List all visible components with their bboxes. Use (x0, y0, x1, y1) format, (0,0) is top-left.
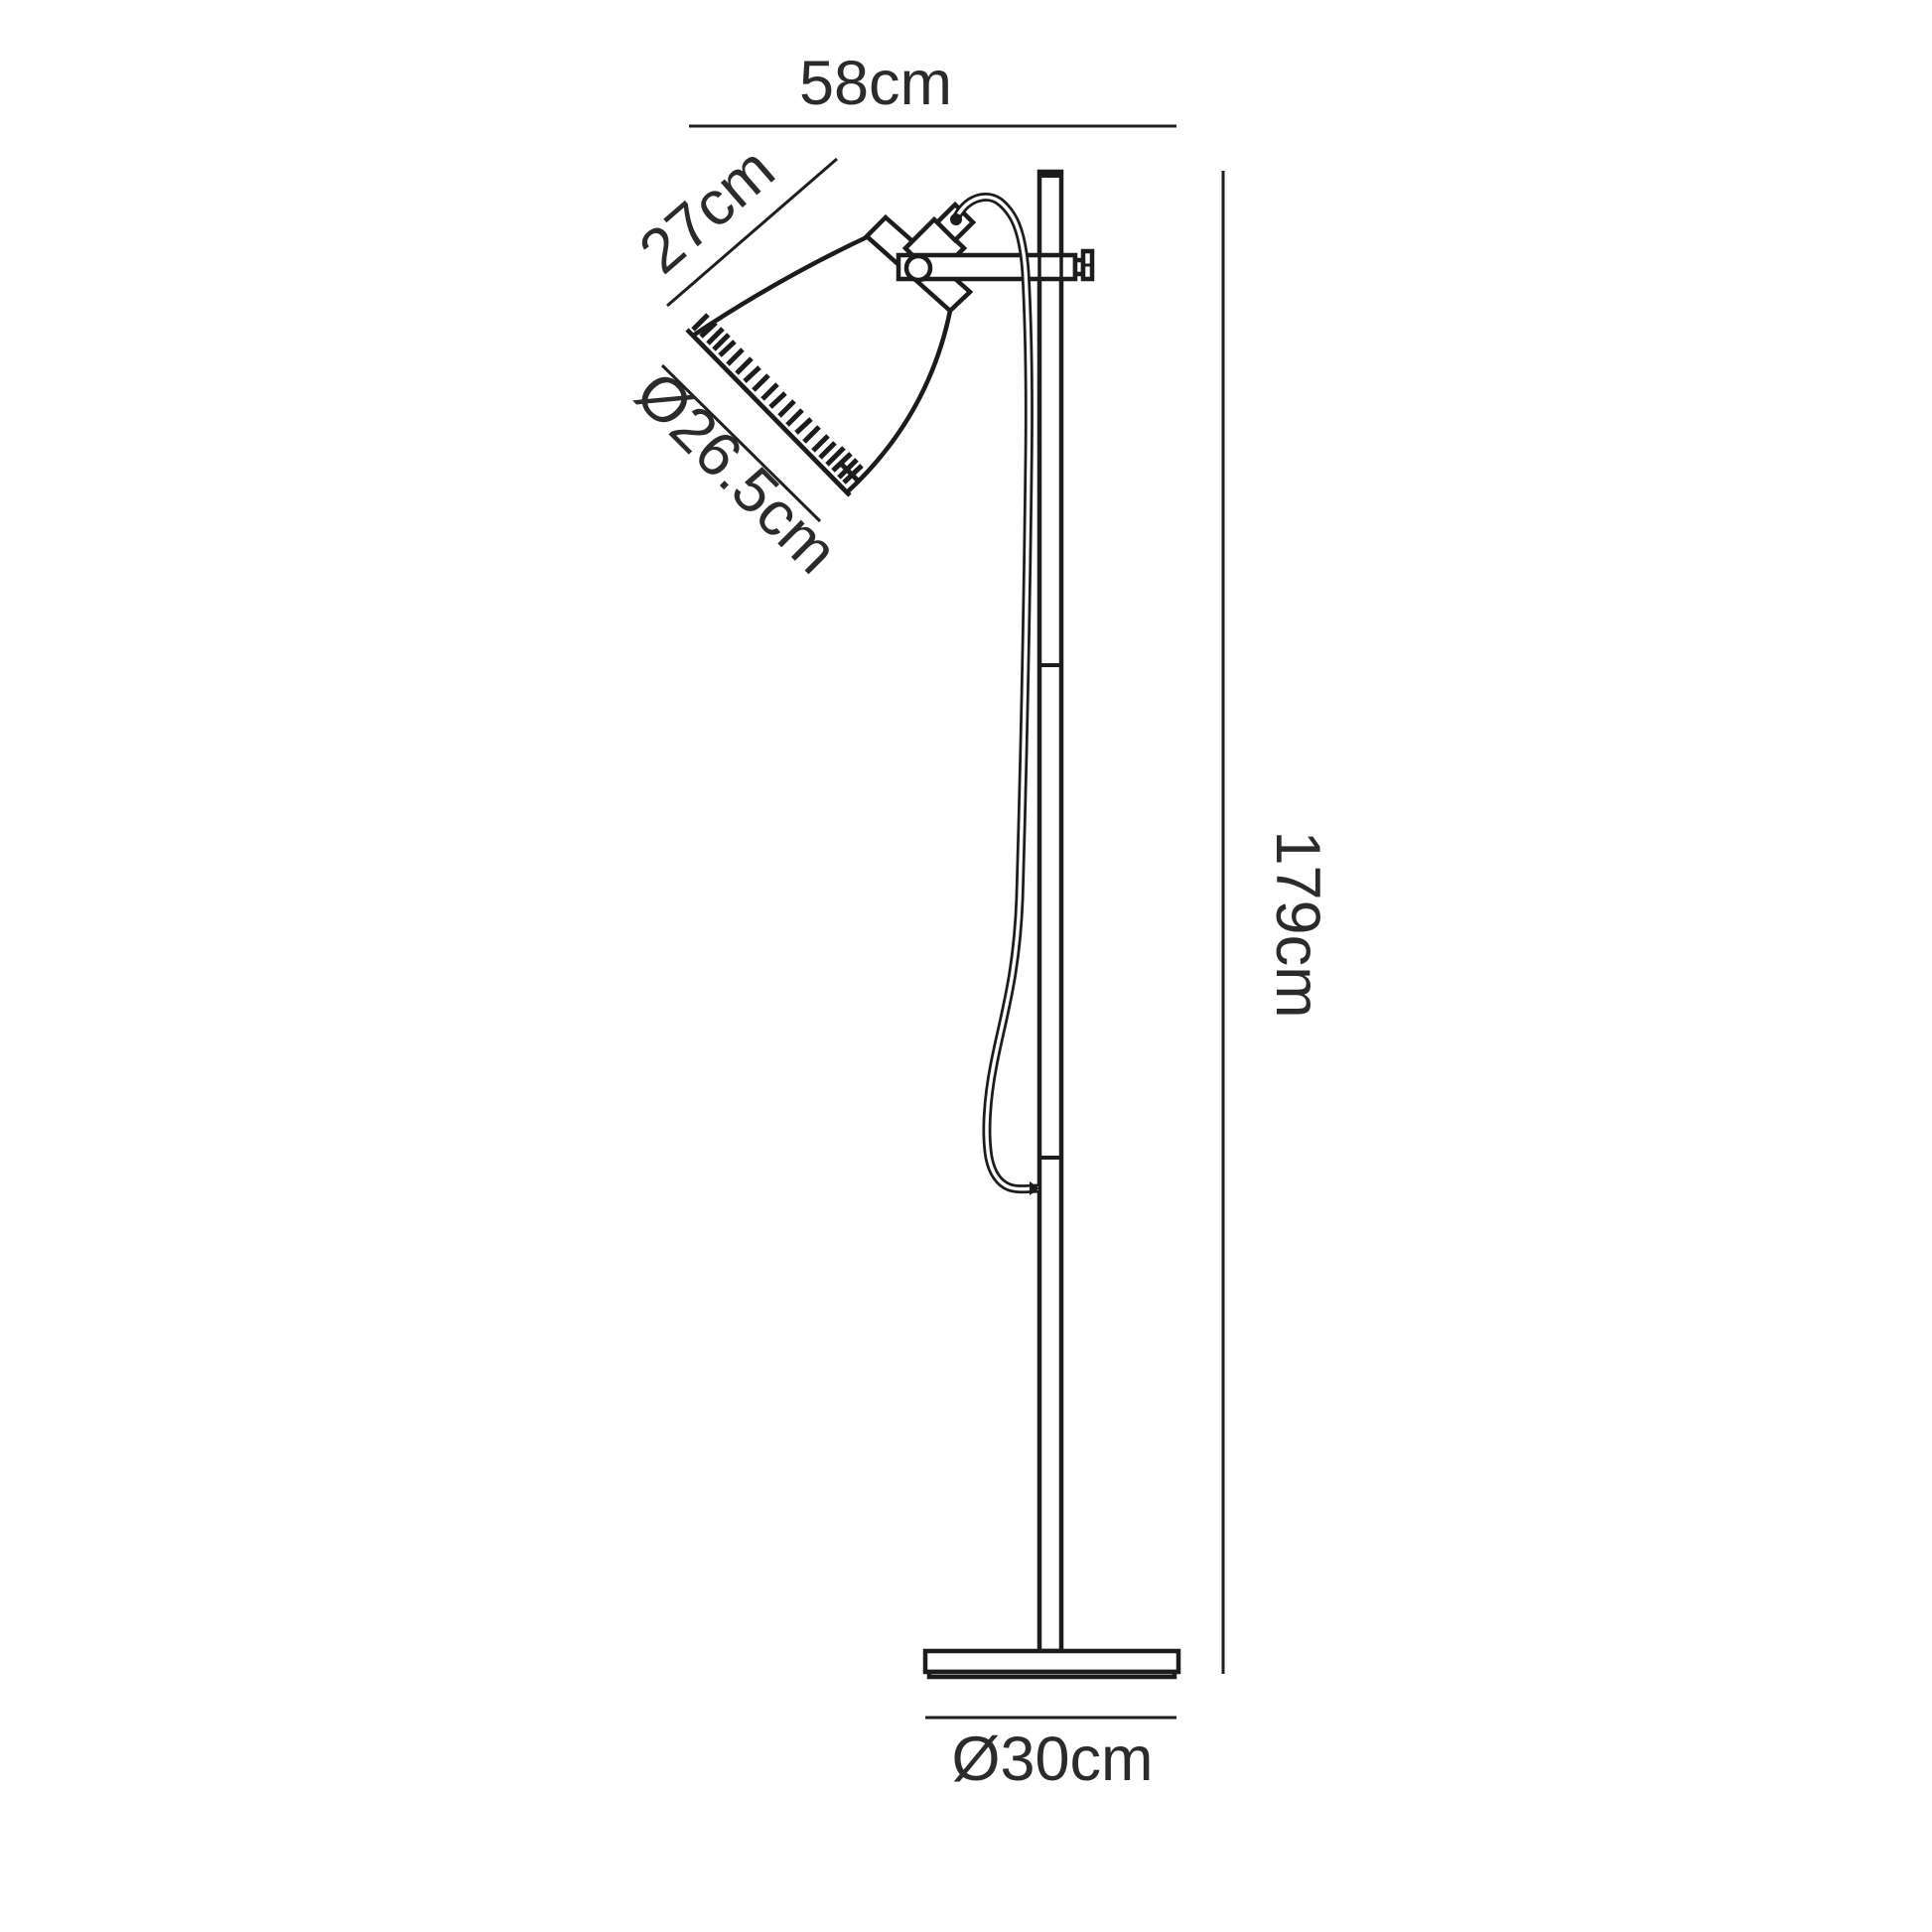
dim-shade-length-label: 27cm (626, 134, 787, 287)
dim-base-diameter-label: Ø30cm (951, 1725, 1153, 1794)
cable-exit-grommet (950, 213, 962, 225)
lamp-base (925, 1651, 1178, 1677)
dim-overall-width-label: 58cm (799, 49, 952, 118)
diagram-canvas: 58cm 27cm Ø26.5cm 179cm Ø30cm (0, 0, 1932, 1932)
lamp-arm-assembly (898, 251, 1092, 280)
pole-shaft (1039, 172, 1061, 1651)
base-underside (929, 1672, 1174, 1677)
lamp-pole (1037, 172, 1063, 1651)
dim-overall-height-label: 179cm (1263, 830, 1332, 1018)
floor-lamp-dimension-diagram: 58cm 27cm Ø26.5cm 179cm Ø30cm (0, 0, 1932, 1932)
pivot-joint (906, 256, 930, 280)
power-cable (950, 197, 1039, 1195)
base-plate (925, 1651, 1178, 1672)
